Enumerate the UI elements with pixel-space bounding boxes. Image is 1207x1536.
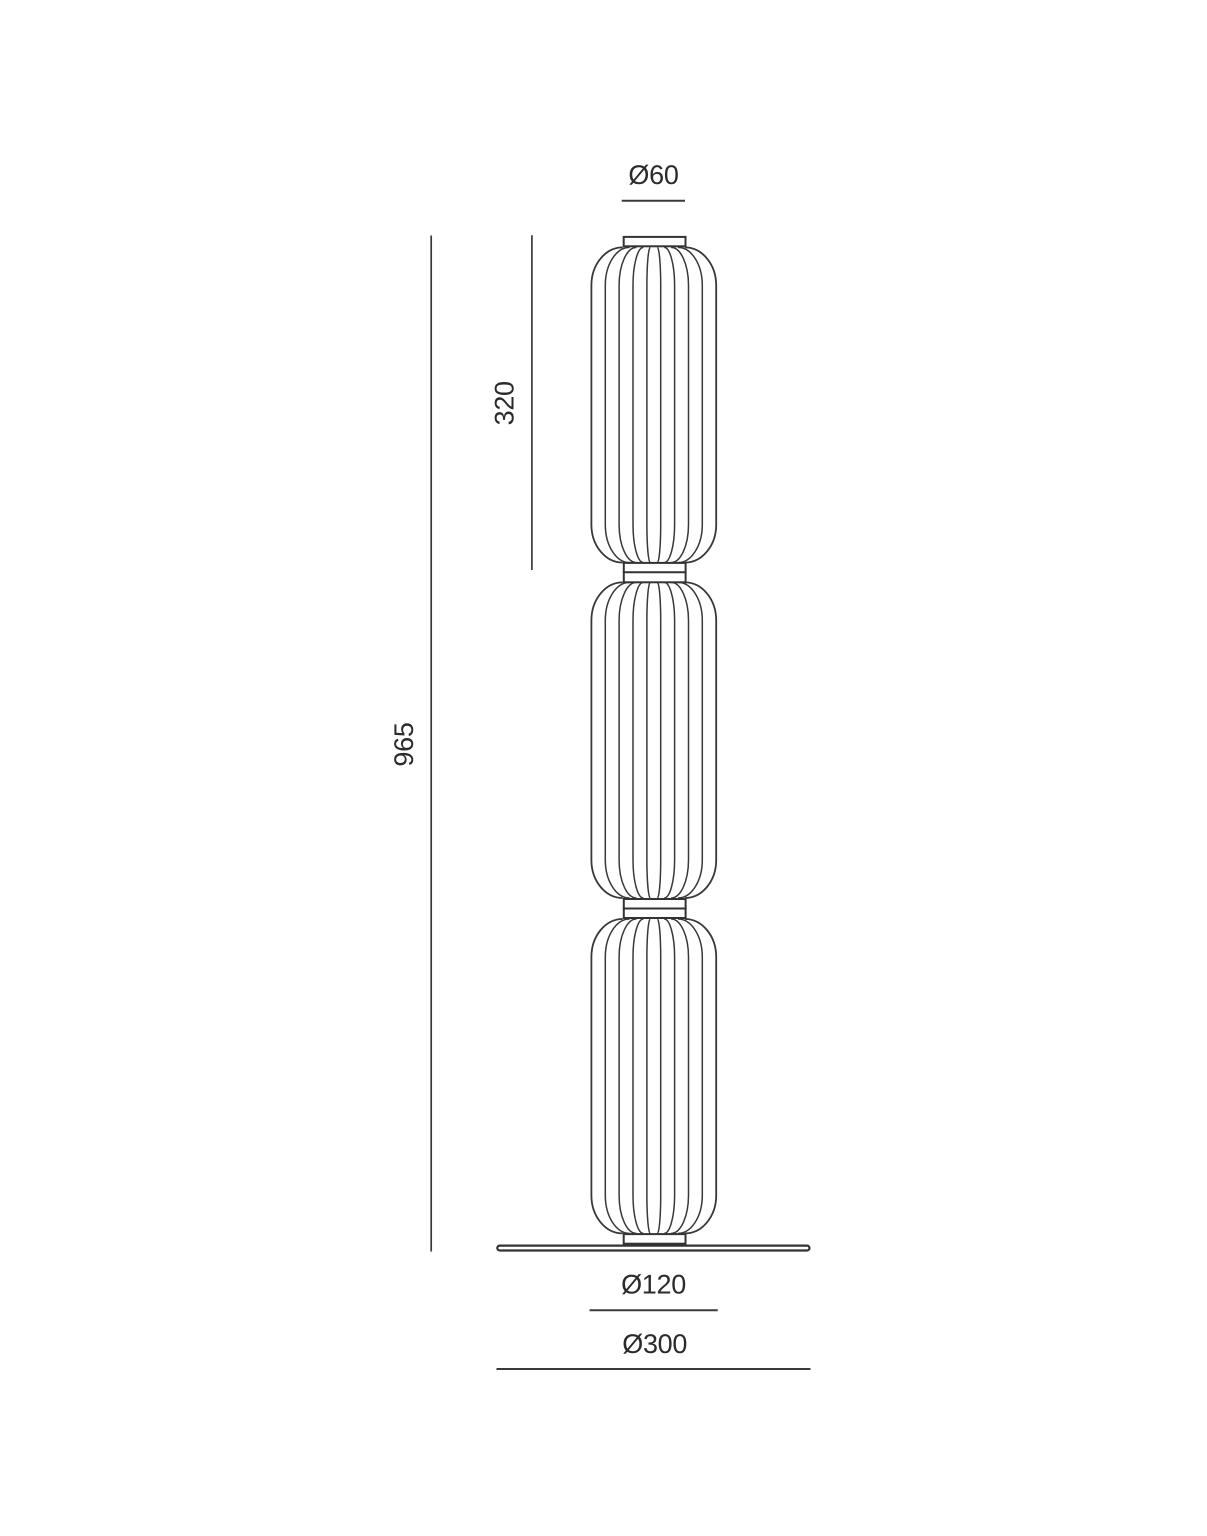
svg-text:Ø300: Ø300 (622, 1329, 687, 1359)
svg-text:Ø60: Ø60 (628, 160, 678, 190)
svg-text:Ø120: Ø120 (621, 1270, 686, 1300)
svg-text:965: 965 (389, 722, 419, 766)
svg-text:320: 320 (489, 381, 519, 425)
